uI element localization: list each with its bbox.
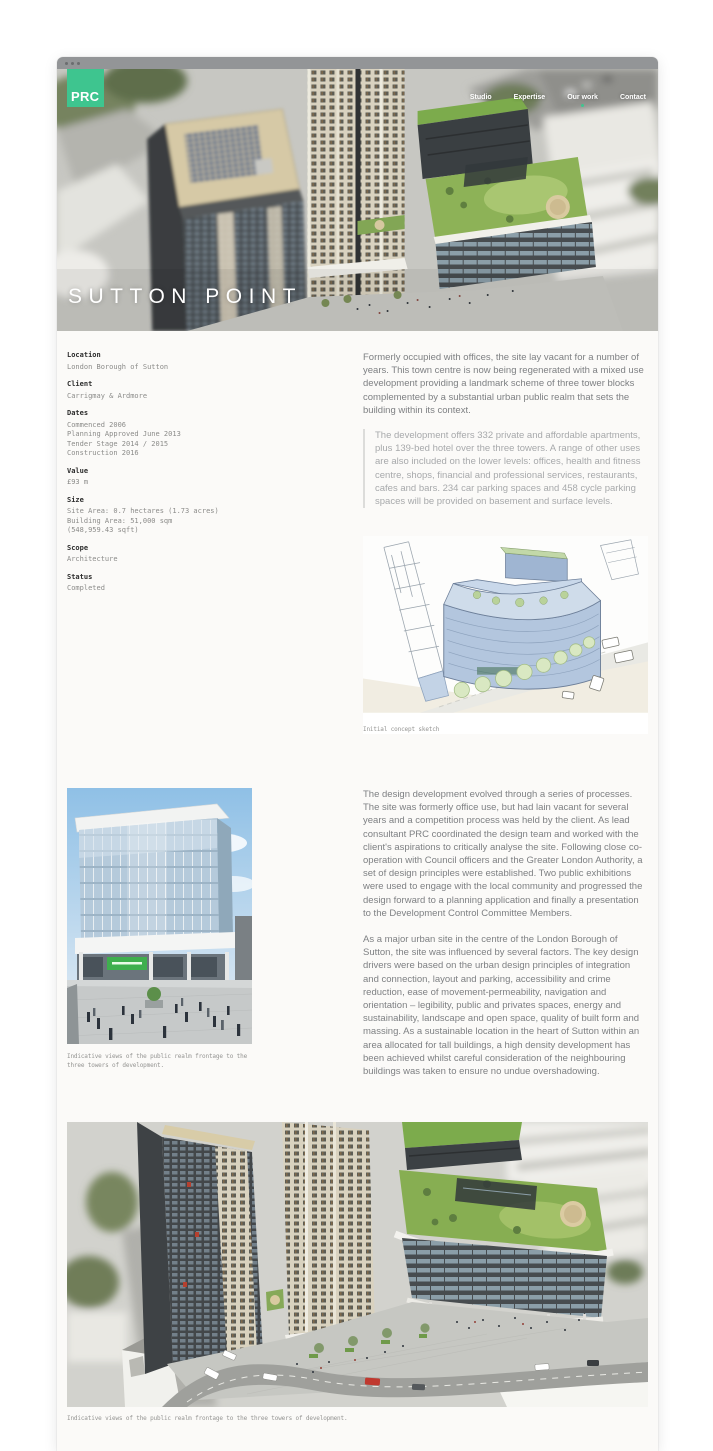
detail-group: Scope Architecture [67, 544, 252, 565]
design-column: The design development evolved through a… [363, 788, 648, 1078]
detail-value: Architecture [67, 555, 252, 565]
page-title: SUTTON POINT [68, 285, 302, 309]
detail-group: Dates Commenced 2006Planning Approved Ju… [67, 409, 252, 459]
nav-item-label: Studio [470, 94, 492, 101]
detail-value: London Borough of Sutton [67, 363, 252, 373]
nav-item-label: Our work [567, 94, 598, 101]
detail-value: Carrigmay & Ardmore [67, 392, 252, 402]
window-control-icon[interactable] [65, 62, 68, 65]
detail-value: Completed [67, 584, 252, 594]
sketch-caption: Initial concept sketch [363, 725, 648, 734]
prc-logo[interactable]: PRC [67, 69, 104, 107]
window-titlebar [57, 57, 658, 69]
aerial-render-figure: Indicative views of the public realm fro… [67, 1122, 648, 1423]
aerial-render-image [67, 1122, 648, 1407]
concept-sketch-image [363, 536, 648, 713]
nav-item-label: Contact [620, 94, 646, 101]
intro-column: Formerly occupied with offices, the site… [363, 351, 648, 734]
detail-label: Size [67, 496, 252, 506]
nav-item[interactable]: Expertise [514, 94, 546, 101]
concept-sketch-figure: Initial concept sketch [363, 536, 648, 734]
window-control-icon[interactable] [77, 62, 80, 65]
detail-label: Location [67, 351, 252, 361]
nav-item[interactable]: Studio [470, 94, 492, 101]
project-details: Location London Borough of Sutton Client… [67, 351, 252, 734]
intro-row: Location London Borough of Sutton Client… [67, 351, 648, 734]
detail-label: Client [67, 380, 252, 390]
photo-caption: Indicative views of the public realm fro… [67, 1052, 252, 1070]
detail-label: Value [67, 467, 252, 477]
intro-paragraph: Formerly occupied with offices, the site… [363, 351, 648, 417]
window-control-icon[interactable] [71, 62, 74, 65]
design-paragraph-1: The design development evolved through a… [363, 788, 648, 920]
browser-window: PRC Studio Expertise Our work Contact SU… [57, 57, 658, 1451]
nav-item[interactable]: Our work [567, 94, 598, 101]
main-nav: Studio Expertise Our work Contact [470, 94, 646, 101]
design-row: Indicative views of the public realm fro… [67, 788, 648, 1078]
page-content: Location London Borough of Sutton Client… [57, 331, 658, 1423]
hero-section: PRC Studio Expertise Our work Contact SU… [57, 69, 658, 331]
design-paragraph-2: As a major urban site in the centre of t… [363, 933, 648, 1078]
intro-blockquote: The development offers 332 private and a… [363, 429, 648, 508]
nav-item[interactable]: Contact [620, 94, 646, 101]
detail-value: £93 m [67, 478, 252, 488]
detail-value: Site Area: 0.7 hectares (1.73 acres)Buil… [67, 507, 252, 536]
detail-label: Dates [67, 409, 252, 419]
public-realm-photo-figure: Indicative views of the public realm fro… [67, 788, 252, 1078]
detail-group: Client Carrigmay & Ardmore [67, 380, 252, 401]
detail-label: Scope [67, 544, 252, 554]
aerial-caption: Indicative views of the public realm fro… [67, 1414, 648, 1423]
public-realm-photo-image [67, 788, 252, 1044]
detail-group: Status Completed [67, 573, 252, 594]
detail-group: Location London Borough of Sutton [67, 351, 252, 372]
nav-item-label: Expertise [514, 94, 546, 101]
detail-value: Commenced 2006Planning Approved June 201… [67, 421, 252, 459]
detail-group: Value £93 m [67, 467, 252, 488]
detail-group: Size Site Area: 0.7 hectares (1.73 acres… [67, 496, 252, 536]
detail-label: Status [67, 573, 252, 583]
